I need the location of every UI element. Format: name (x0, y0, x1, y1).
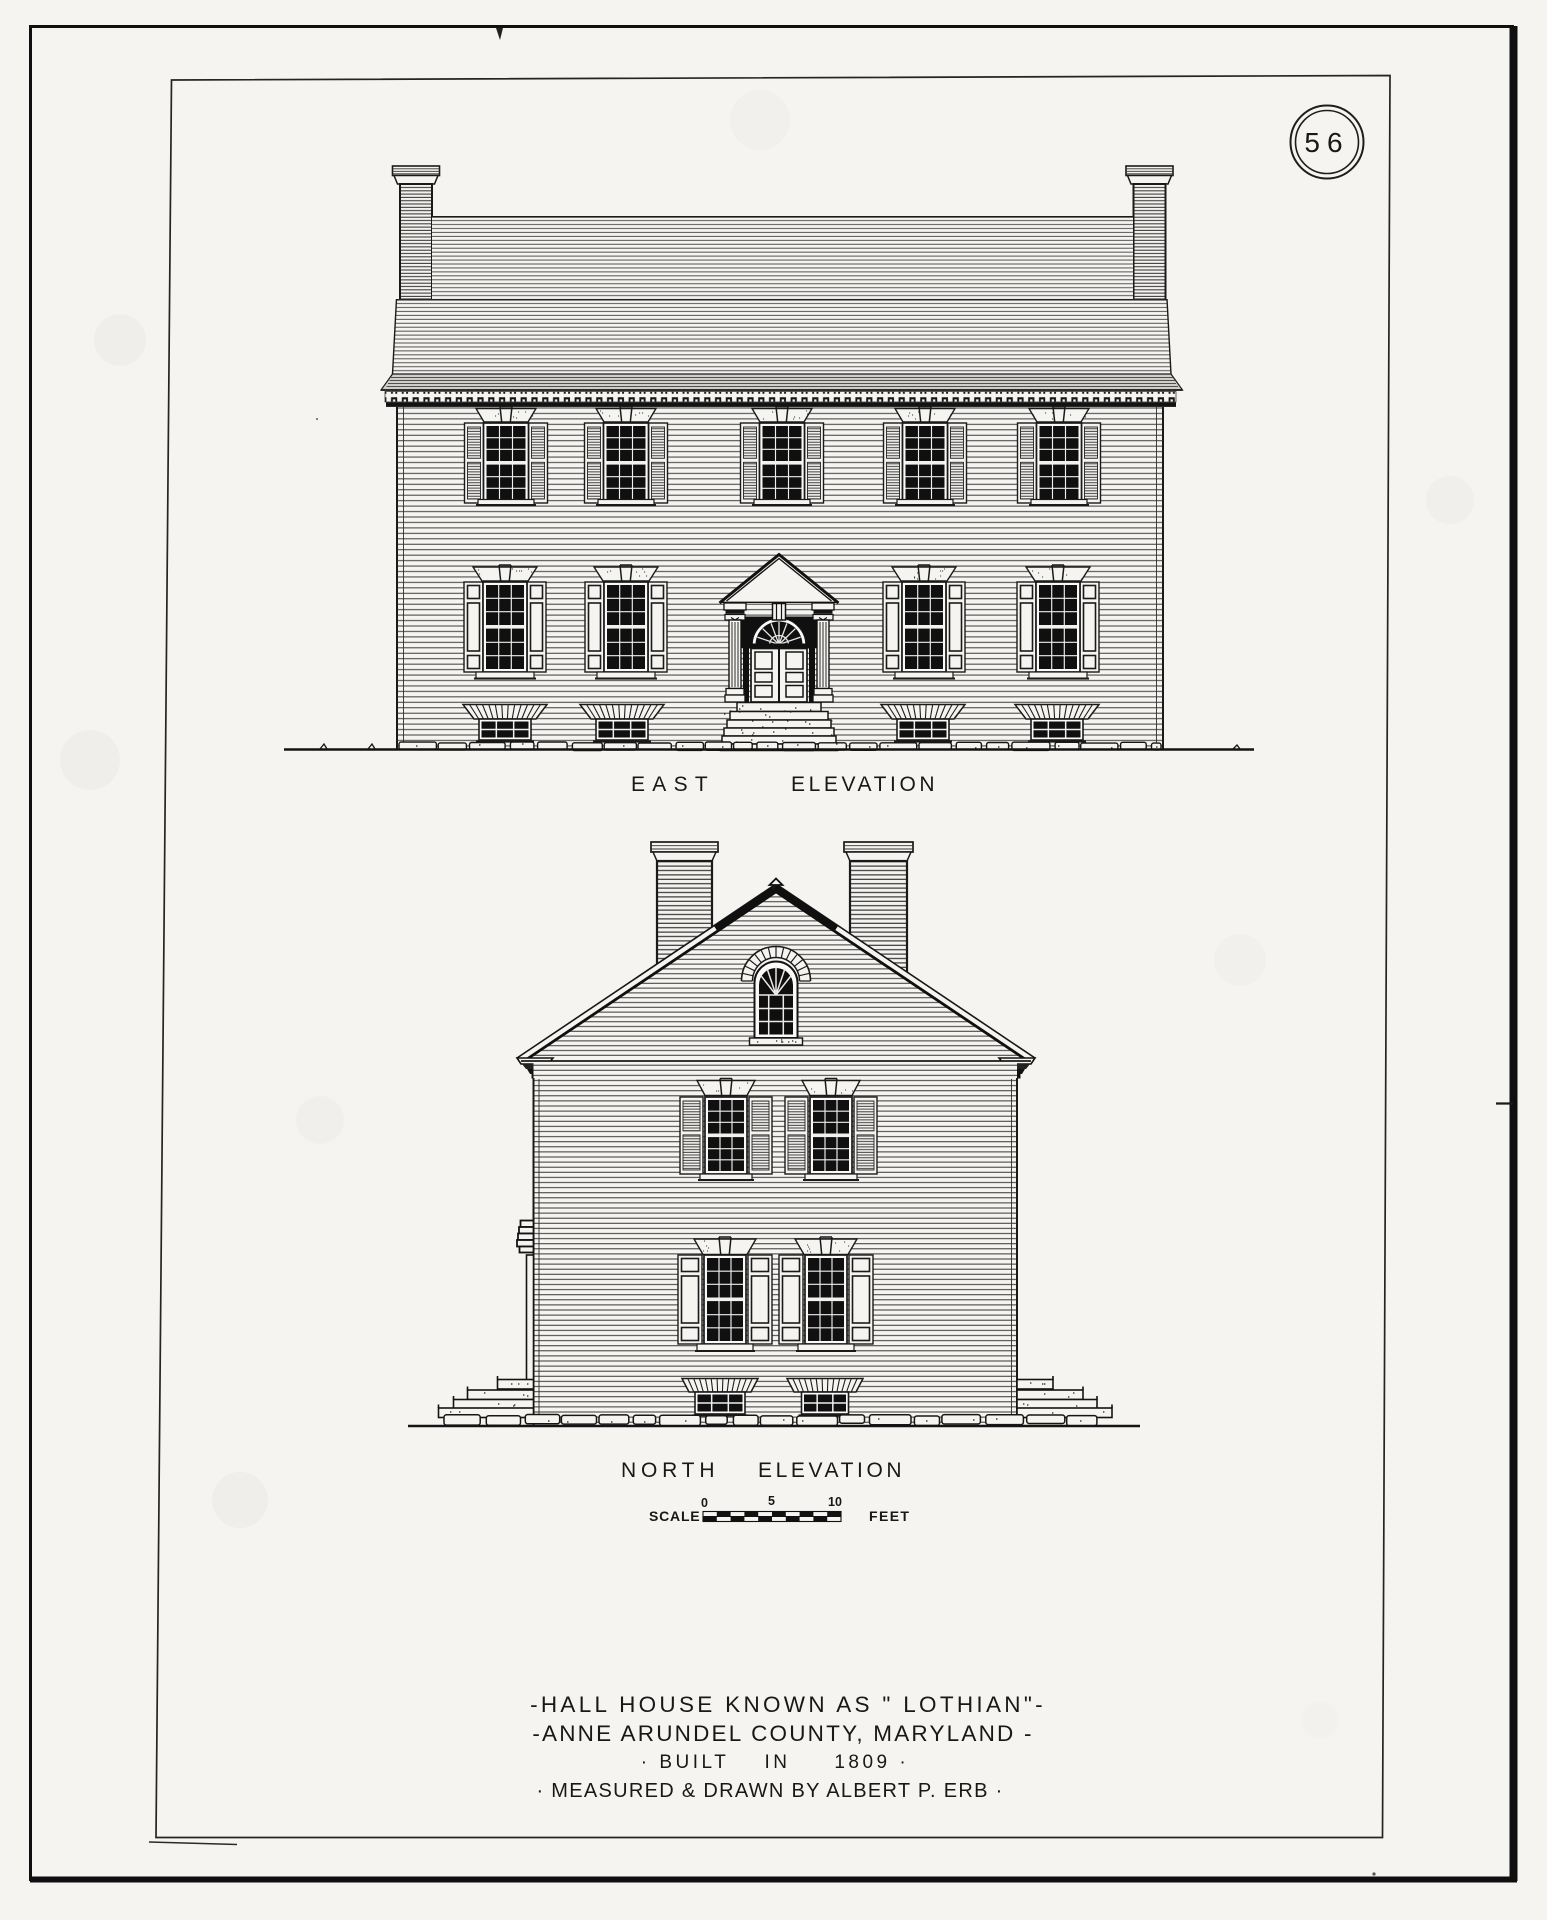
svg-text:10: 10 (828, 1495, 842, 1509)
svg-text:5: 5 (768, 1494, 775, 1508)
svg-text:FEET: FEET (869, 1508, 910, 1524)
svg-text:SCALE: SCALE (649, 1508, 700, 1524)
svg-text:0: 0 (701, 1496, 708, 1510)
svg-text:-ANNE ARUNDEL COUNTY, MARYLA: -ANNE ARUNDEL COUNTY, MARYLAND - (532, 1721, 1033, 1746)
svg-text:· BUILT IN 1809 ·: · BUILT IN 1809 · (641, 1752, 909, 1773)
svg-text:EAST: EAST (631, 773, 715, 796)
svg-text:· MEASURED & DRAWN BY ALBER: · MEASURED & DRAWN BY ALBERT P. ERB · (536, 1780, 1003, 1802)
svg-text:NORTH: NORTH (621, 1459, 719, 1482)
svg-text:ELEVATION: ELEVATION (791, 773, 938, 796)
svg-text:-HALL HOUSE KNOWN AS " LOTH: -HALL HOUSE KNOWN AS " LOTHIAN"- (530, 1692, 1046, 1717)
svg-text:ELEVATION: ELEVATION (758, 1459, 905, 1482)
svg-text:56: 56 (1304, 127, 1349, 158)
